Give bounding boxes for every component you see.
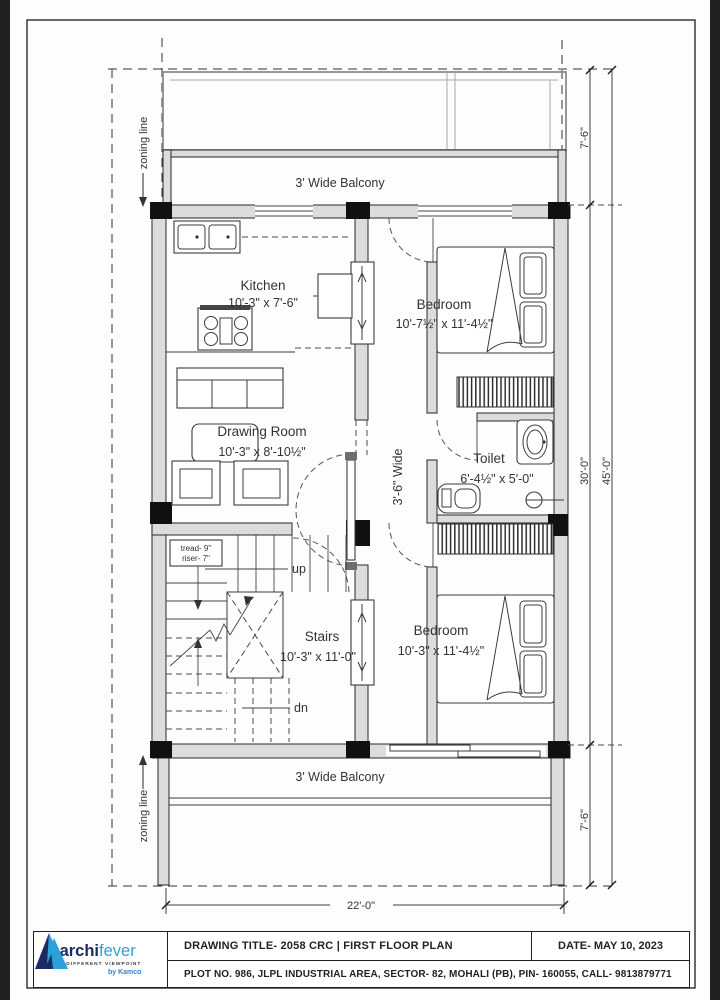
staircase: tread- 9" riser- 7" up dn Stairs 10'-3" …: [166, 535, 356, 742]
toilet-door-arc: [437, 420, 477, 460]
zoning-line-label-bottom: zoning line: [138, 790, 150, 843]
tread-note: tread- 9": [181, 544, 212, 553]
room-drawing: Drawing Room 10'-3" x 8'-10½": [172, 368, 307, 505]
bedroom-top-dims: 10'-7½" x 11'-4½": [396, 317, 493, 331]
bedroom-top-window: [418, 204, 512, 219]
tread-riser-note: tread- 9" riser- 7": [170, 540, 222, 566]
room-bedroom-bottom: Bedroom 10'-3" x 11'-4½": [398, 524, 554, 703]
wardrobe: [457, 377, 553, 407]
terrace-top: [163, 72, 566, 150]
drawing-sheet: zoning line zoning line 3' Wide Balcony: [0, 0, 720, 1000]
floor-plan: zoning line zoning line 3' Wide Balcony: [0, 0, 720, 1000]
up-label: up: [292, 562, 306, 576]
balcony-top-label: 3' Wide Balcony: [295, 176, 385, 190]
balcony-top: 3' Wide Balcony: [163, 150, 566, 206]
dim-setback-top: 7'-6": [579, 127, 591, 149]
room-kitchen: Kitchen 10'-3" x 7'-6": [174, 221, 352, 350]
sofa: [177, 368, 283, 408]
sheet-border: [27, 20, 695, 988]
toilet-label: Toilet: [473, 451, 505, 466]
bedroom-bottom-door-arc: [389, 523, 433, 567]
dim-setback-bottom: 7'-6": [579, 809, 591, 831]
bedroom-top-label: Bedroom: [417, 297, 472, 312]
drawing-date: DATE- MAY 10, 2023: [531, 932, 689, 960]
vent-panel-top: [351, 262, 374, 344]
zoning-line-label-top: zoning line: [138, 117, 150, 170]
brand-byline: by Kamco: [60, 969, 142, 976]
logo: archifever A DIFFERENT VIEWPOINT by Kamc…: [34, 932, 168, 987]
title-block: archifever A DIFFERENT VIEWPOINT by Kamc…: [33, 931, 690, 988]
arrow-up-icon: [139, 755, 147, 765]
armchair: [234, 461, 288, 505]
kitchen-dims: 10'-3" x 7'-6": [228, 296, 298, 310]
kitchen-label: Kitchen: [240, 278, 285, 293]
dim-floor-depth: 30'-0": [579, 457, 591, 485]
balcony-bottom: 3' Wide Balcony: [158, 758, 564, 885]
dim-overall-depth: 45'-0": [601, 457, 613, 485]
bedroom-bottom-dims: 10'-3" x 11'-4½": [398, 644, 484, 658]
brand-fever: fever: [99, 942, 136, 960]
arrow-down-icon: [139, 197, 147, 207]
toilet-dims: 6'-4½" x 5'-0": [460, 472, 533, 486]
vent-panel-bottom: [351, 600, 374, 685]
wc: [438, 484, 480, 513]
kitchen-window: [255, 204, 313, 219]
kitchen-sink: [174, 221, 240, 253]
brand-name: archifever: [60, 943, 142, 960]
riser-note: riser- 7": [182, 554, 210, 563]
wardrobe: [438, 524, 553, 554]
drawing-title: DRAWING TITLE- 2058 CRC | FIRST FLOOR PL…: [168, 940, 531, 952]
archifever-logo-icon: [34, 932, 68, 970]
bedroom-top-door-arc: [389, 218, 433, 262]
room-toilet: Toilet 6'-4½" x 5'-0": [438, 420, 564, 513]
stove: [198, 305, 252, 350]
hall-door-arc: [296, 454, 352, 566]
room-bedroom-top: Bedroom 10'-7½" x 11'-4½": [396, 247, 554, 407]
stair-arrow-down-icon: [194, 600, 202, 610]
drawing-room-dims: 10'-3" x 8'-10½": [218, 445, 305, 459]
brand-tagline: A DIFFERENT VIEWPOINT: [60, 962, 142, 967]
drawing-room-label: Drawing Room: [217, 424, 306, 439]
dn-label: dn: [294, 701, 308, 715]
bedroom-bottom-window: [386, 745, 546, 757]
wash-basin: [517, 420, 553, 464]
stairs-dims: 10'-3" x 11'-0": [280, 650, 356, 664]
dim-overall-width: 22'-0": [347, 900, 375, 912]
bedroom-bottom-label: Bedroom: [414, 623, 469, 638]
armchair: [172, 461, 220, 505]
passage-label: 3'-6" Wide: [391, 449, 405, 506]
balcony-bottom-label: 3' Wide Balcony: [295, 770, 385, 784]
refrigerator: [313, 274, 352, 318]
stairs-label: Stairs: [305, 629, 340, 644]
plot-info: PLOT NO. 986, JLPL INDUSTRIAL AREA, SECT…: [168, 961, 689, 987]
